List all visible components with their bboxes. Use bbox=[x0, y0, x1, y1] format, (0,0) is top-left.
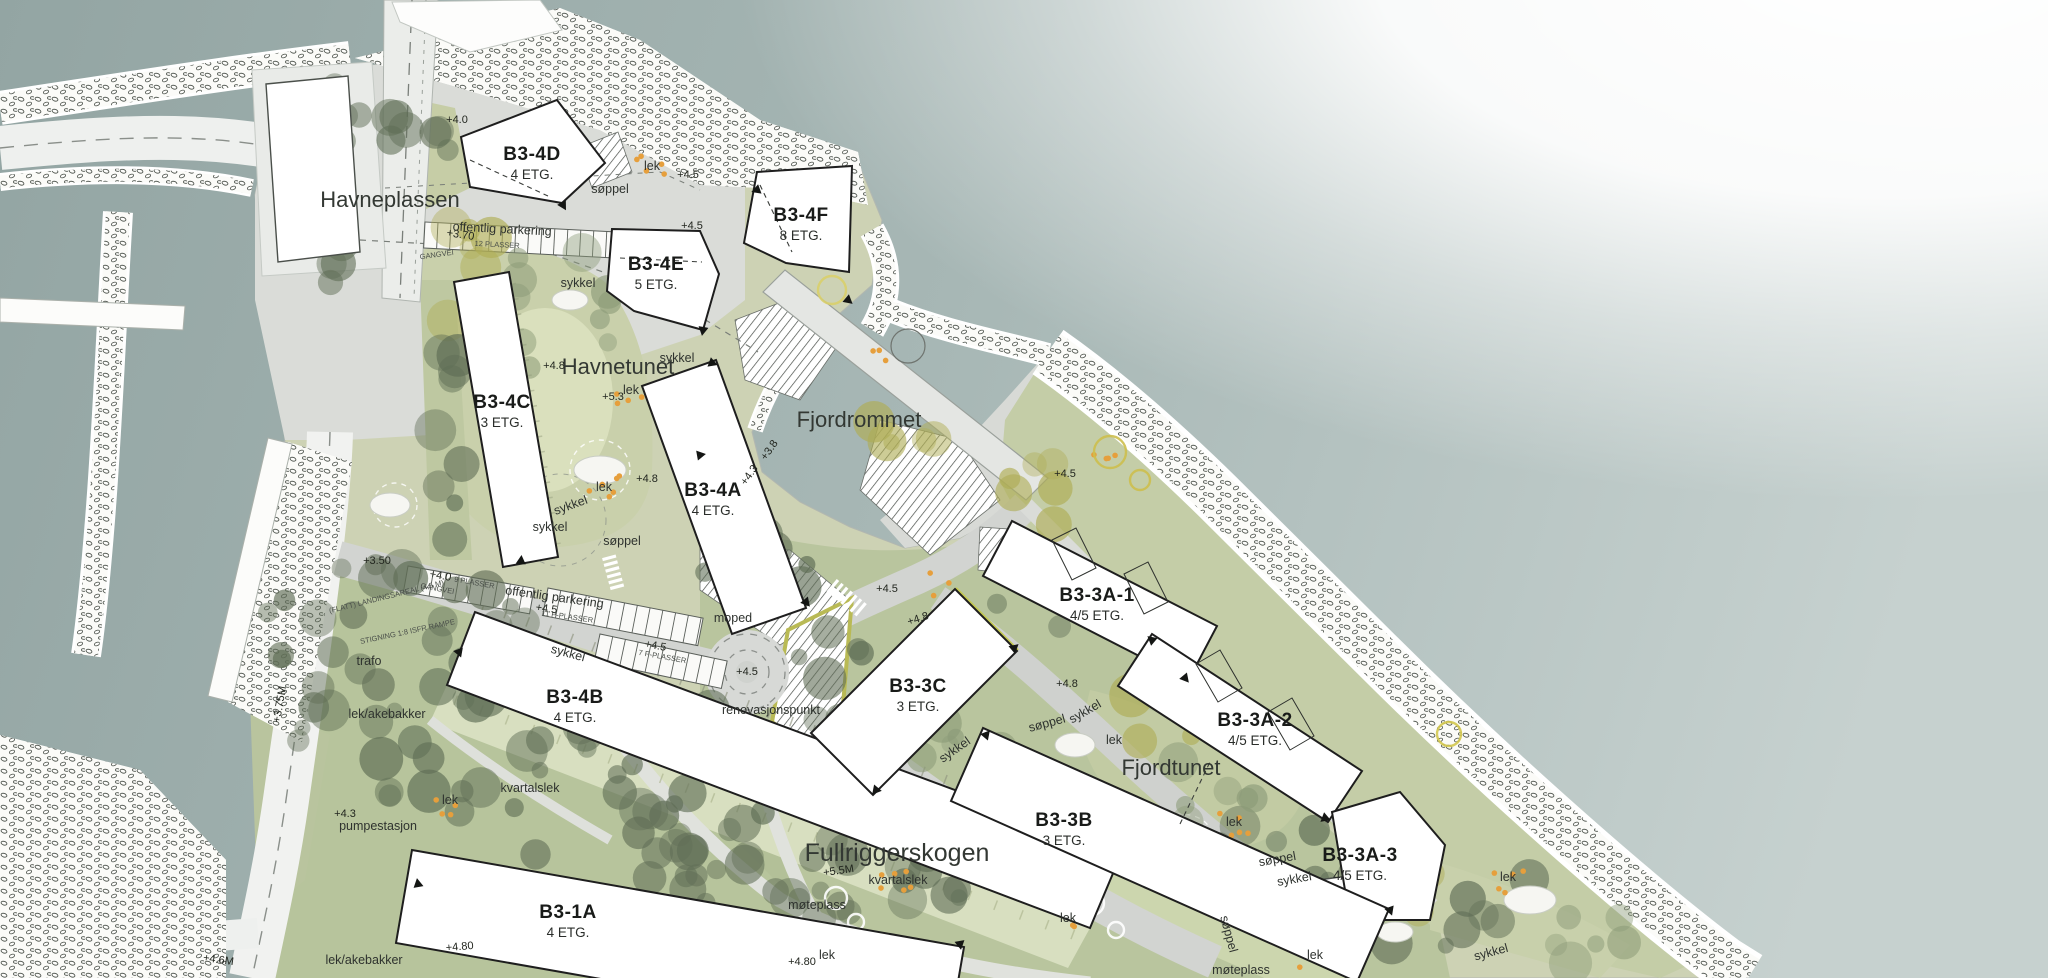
fog-overlay bbox=[0, 0, 2048, 978]
site-plan-svg: HavneplassenHavnetunetFjordrommetFjordtu… bbox=[0, 0, 2048, 978]
site-plan-map: HavneplassenHavnetunetFjordrommetFjordtu… bbox=[0, 0, 2048, 978]
